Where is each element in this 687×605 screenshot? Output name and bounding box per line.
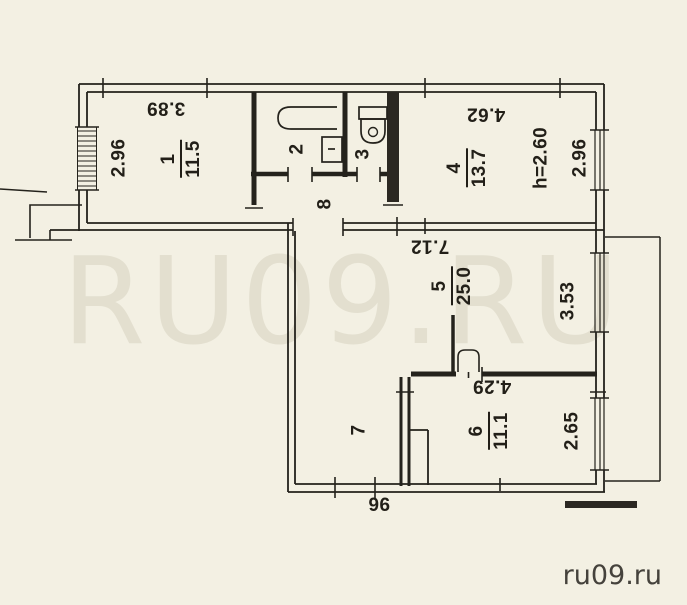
toilet-icon: [359, 107, 387, 143]
door-leaf-icon: [458, 350, 479, 378]
dim-depth-room4: 2.96: [571, 139, 590, 178]
room-7-number: 7: [350, 425, 369, 436]
room-1-number: 1: [159, 154, 178, 165]
vent-shaft: [387, 92, 399, 202]
room-4-number: 4: [445, 163, 464, 174]
room-4-area: 13.7: [470, 149, 489, 188]
bathtub-icon: [278, 107, 337, 129]
fraction-bar: [180, 140, 182, 178]
dim-width-room4: 4.62: [467, 105, 506, 124]
interior-walls-lower: [335, 315, 606, 498]
room-5-label: 5 25.0: [430, 267, 474, 306]
fraction-bar: [466, 149, 468, 188]
dim-width-room5: 7.12: [411, 237, 450, 256]
windows-right: [590, 130, 609, 470]
balcony-slab-edge: [565, 501, 637, 508]
dim-door-96: 96: [368, 494, 390, 513]
dim-width-room6: 4.29: [473, 377, 512, 396]
room-1-label: 1 11.5: [159, 140, 203, 178]
room-3-number: 3: [354, 149, 373, 160]
sink-icon: [322, 137, 342, 162]
dim-depth-room5: 3.53: [559, 282, 578, 321]
room-5-area: 25.0: [455, 267, 474, 306]
dim-depth-room1: 2.96: [110, 139, 129, 178]
room-4-label: 4 13.7: [445, 149, 489, 188]
balcony-outline: [605, 237, 660, 481]
window-room1: [75, 127, 99, 190]
room-6-number: 6: [467, 426, 486, 437]
room-5-number: 5: [430, 281, 449, 292]
room-6-label: 6 11.1: [467, 412, 511, 450]
fraction-bar: [451, 267, 453, 306]
site-name-text: ru09.ru: [563, 560, 662, 591]
ceiling-height-note: h=2.60: [532, 127, 551, 189]
floorplan-image: RU09.RU: [0, 0, 687, 605]
outer-walls: [50, 84, 605, 492]
room-1-area: 11.5: [184, 140, 203, 178]
room-8-number: 8: [316, 199, 335, 210]
room-2-number: 2: [288, 144, 307, 155]
entrance-step: [0, 189, 82, 240]
fraction-bar: [488, 412, 490, 450]
dim-depth-room6: 2.65: [563, 412, 582, 451]
floorplan-drawing: [0, 0, 687, 605]
room-6-area: 11.1: [492, 412, 511, 450]
dim-width-room1: 3.89: [147, 99, 186, 118]
